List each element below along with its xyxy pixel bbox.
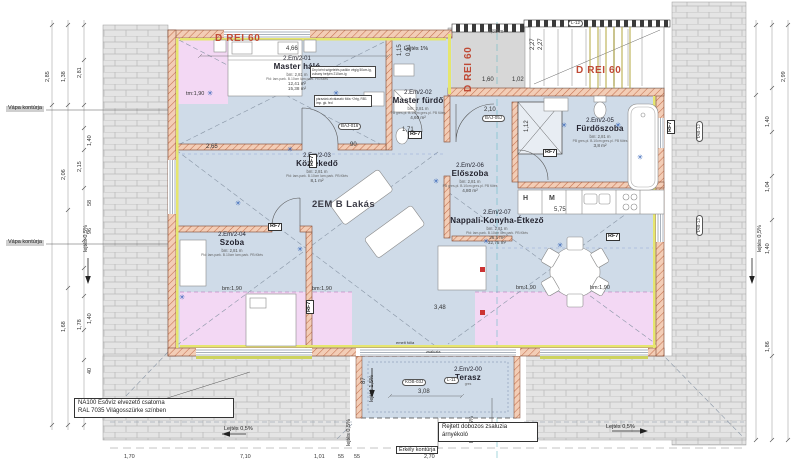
rf-code: RF7 [667,120,675,134]
fridge-letter: H [523,195,528,202]
element-code: BAJ-016 [338,123,361,130]
vent-symbol-icon: ✳ [557,243,563,250]
room-name: Nappali-Konyha-Étkező [450,216,544,225]
valley-contour-label: Vápa kontúrja [6,240,44,246]
dimension-label: 55 [338,455,344,461]
dimension-label: 1,78 [78,319,84,330]
dimension-label: 1,15 [397,44,403,56]
slope-label: lejtés 0,5% [84,225,90,252]
dimension-label: 2,70 [424,455,435,461]
dimension-label: 58 [88,200,94,206]
insulation-note: Dny ként szigetelés padlón végig 50cm-ig… [310,66,376,78]
rf-code: RF7 [408,131,422,139]
terrace-note: zsaluzia [426,350,440,354]
roof-area-label: 4,80 m² [488,30,505,35]
gutter-note: NA100 Esővíz elvezető csatorna RAL 7035 … [74,398,234,418]
gutter-note-line2: RAL 7035 Világosszürke színben [78,408,230,416]
terrace [356,356,520,418]
element-code: KOB-03J [402,379,426,386]
room-area-gross: 32,75 m² [450,240,544,245]
room-name: Master fürdő [391,96,446,105]
rf-code: RF7 [268,223,282,231]
dimension-label: 5,75 [554,207,566,213]
room-label: 2.Em/2-06 Előszoba bm: 2,81 m PB gres.pl… [443,163,498,193]
dimension-label: 1,01 [314,455,325,461]
vent-symbol-icon: ✳ [207,91,213,98]
room-label: 2.Em/2-04 Szoba bm: 2,81 m Pld: lam.park… [201,232,263,257]
appliance-letter: M [549,195,555,202]
dimension-label: 87 [361,377,367,384]
dimension-label: 2,06 [62,169,68,180]
dimension-label: 7,10 [240,455,251,461]
dimension-label: 55 [354,455,360,461]
dimension-label: 1,68 [62,321,68,332]
shutter-note: Rejtett dobozos zsaluzia árnyékoló [438,422,538,442]
slope-label: Lejtés 0,5% [224,427,253,433]
dimension-label: 1,38 [62,71,68,82]
dimension-label: 2,10 [484,107,496,113]
vent-symbol-icon: ✳ [235,201,241,208]
room-name: Előszoba [443,169,498,178]
vent-symbol-icon: ✳ [433,179,439,186]
rf-code: RF7 [606,233,620,241]
dimension-label: 1,40 [766,116,772,127]
room-label: 2.Em/2-03 Közlekedő bm: 2,81 m Pld: lam.… [286,153,348,183]
dimension-label: 2,27 [530,38,536,50]
dimension-label: 2,99 [782,71,788,82]
headroom-label: bm:1,90 [312,287,332,293]
terrace-note: emelt fólia [396,341,414,345]
fire-rating-label: D REI 60 [464,47,474,92]
slope-label: lejtés 1,5% [370,375,376,402]
dimension-label: 2,85 [46,71,52,82]
vent-symbol-icon: ✳ [637,155,643,162]
headroom-label: bm:1,90 [590,286,610,292]
vent-symbol-icon: ✳ [561,123,567,130]
dimension-label: 2,15 [78,161,84,172]
apartment-title: 2EM B Lakás [312,200,375,210]
headroom-label: bm:1,90 [516,286,536,292]
dimension-label: 1,04 [766,181,772,192]
room-name: Szoba [201,238,263,247]
headroom-label: bm:1,90 [222,287,242,293]
fire-rating-label: D REI 60 [215,34,260,44]
headroom-label: tm:1,90 [186,92,204,98]
room-label: 2.Em/2-00 Terasz gres [454,367,482,386]
room-floor-spec: Pld: lam.park. B.10cm lam.park. PB fűtés [201,253,263,257]
dimension-label: 4,66 [286,46,298,52]
dimension-label: 1,40 [88,313,94,324]
vent-symbol-icon: ✳ [483,239,489,246]
vent-symbol-icon: ✳ [179,295,185,302]
room-label: 2.Em/2-02 Master fürdő bm: 2,81 m PB gre… [391,90,446,120]
vent-symbol-icon: ✳ [615,123,621,130]
gutter-note-line1: NA100 Esővíz elvezető csatorna [78,400,230,408]
floorplan-svg [0,0,800,467]
valley-contour-label: Vápa kontúrja [6,106,44,112]
dimension-label: 40 [88,368,94,374]
room-area: 4,80 m² [443,188,498,193]
room-area: 4,60 m² [391,115,446,120]
dimension-label: 3,08 [418,389,430,395]
dimension-label: 1,40 [766,243,772,254]
slope-label: Lejtés 1% [404,47,428,53]
room-name: Közlekedő [286,159,348,168]
dimension-label: 2,65 [206,144,218,150]
element-code: TAB-1J [696,215,703,236]
element-code: L-12 [568,20,583,27]
vent-symbol-icon: ✳ [287,147,293,154]
dimension-label: 1,86 [766,341,772,352]
slope-label: lejtés 0,5% [347,419,353,446]
dimension-label: 2,27 [538,38,544,50]
stairwell [530,27,664,88]
slope-label: lejtés 0,5% [758,225,764,252]
element-code: L-11 [444,377,459,384]
room-label: 2.Em/2-07 Nappali-Konyha-Étkező bm: 2,81… [450,210,544,245]
dimension-label: 1,60 [482,77,494,83]
element-code: BAJ-05J [482,115,505,122]
dimension-label: 1,02 [512,77,524,83]
rf-code: RF7 [306,300,314,314]
membrane-note: párazáró-elválasztó fólia +2rtg, RB1 imp… [314,95,372,107]
dimension-label: 2,81 [78,67,84,78]
slope-label: Lejtés 0,5% [606,425,635,431]
room-area-gross: 15,38 m² [266,86,328,91]
room-area: 8,1 m² [286,178,348,183]
vent-symbol-icon: ✳ [297,247,303,254]
dimension-label: 1,12 [524,120,530,132]
element-code: TAB-1J [696,121,703,142]
room-area: 3,8 m² [573,143,628,148]
rf-code: RF7 [543,149,557,157]
floorplan-canvas: 2EM B Lakás 2.Em/2-01 Master háló bm: 2,… [0,0,800,467]
shutter-note-line1: Rejtett dobozos zsaluzia [442,424,534,432]
dimension-label: 1,40 [88,135,94,146]
dimension-label: 3,48 [434,305,446,311]
rf-code: RF7 [309,154,317,168]
dimension-label: 90 [350,142,357,148]
fire-rating-label: D REI 60 [576,66,621,76]
dimension-label: 1,70 [124,455,135,461]
shutter-note-line2: árnyékoló [442,432,534,440]
balcony-contour-note: Erkély kontúrja [396,446,438,454]
